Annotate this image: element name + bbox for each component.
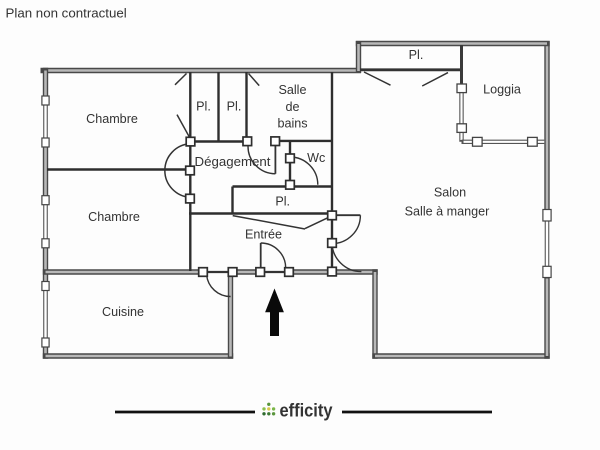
svg-text:efficity: efficity — [280, 400, 333, 420]
svg-text:Salle: Salle — [278, 83, 306, 97]
svg-text:Pl.: Pl. — [196, 100, 211, 114]
svg-text:Pl.: Pl. — [227, 100, 242, 114]
svg-text:Entrée: Entrée — [245, 227, 282, 241]
svg-text:Plan non contractuel: Plan non contractuel — [6, 6, 127, 21]
svg-text:Chambre: Chambre — [86, 112, 138, 126]
svg-text:Cuisine: Cuisine — [102, 305, 144, 319]
svg-text:Pl.: Pl. — [409, 48, 424, 62]
svg-text:de: de — [285, 100, 299, 114]
svg-text:Salon: Salon — [434, 186, 466, 200]
svg-text:Dégagement: Dégagement — [195, 155, 272, 169]
svg-text:Salle à manger: Salle à manger — [405, 204, 490, 218]
svg-text:Chambre: Chambre — [88, 210, 140, 224]
svg-text:bains: bains — [277, 116, 307, 130]
svg-text:Loggia: Loggia — [483, 82, 521, 96]
svg-text:Wc: Wc — [307, 151, 325, 165]
svg-text:Pl.: Pl. — [275, 195, 290, 209]
